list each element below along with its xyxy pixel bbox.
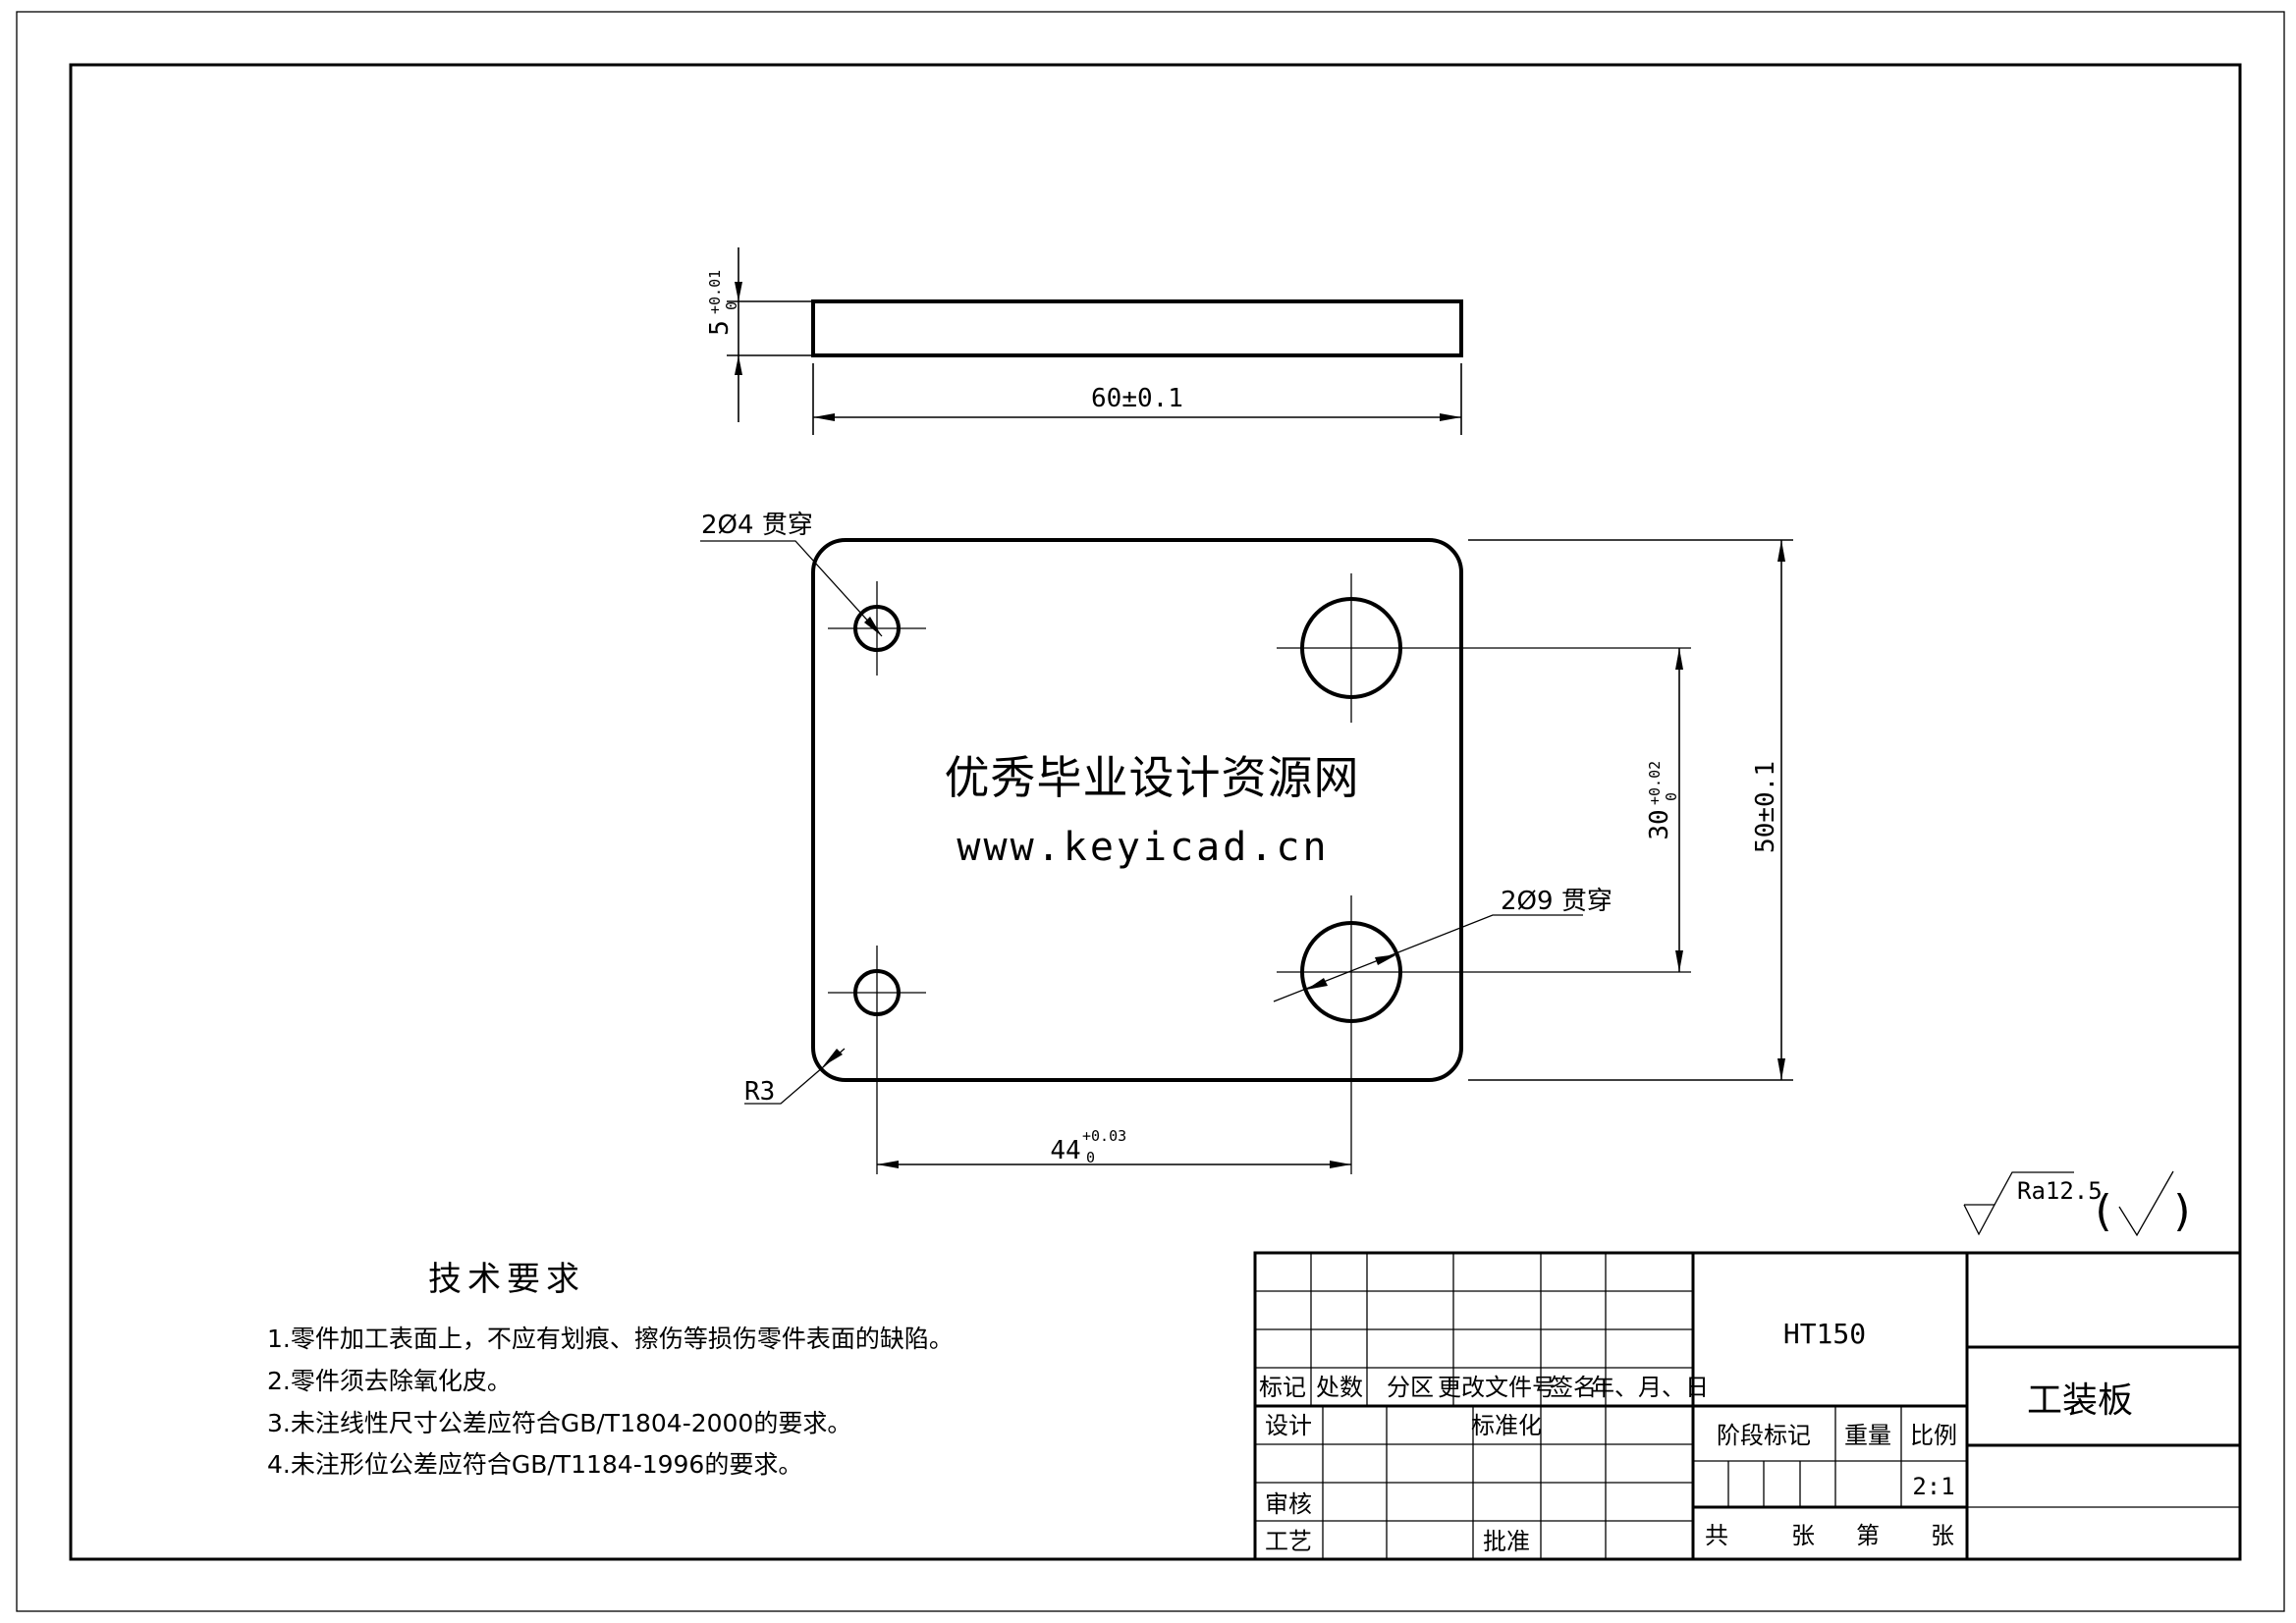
- info-header-weight: 重量: [1844, 1422, 1891, 1449]
- roughness-symbol: Ra12.5: [1964, 1172, 2103, 1234]
- dim-length: 60±0.1: [813, 363, 1461, 435]
- rev-header-count: 处数: [1316, 1374, 1363, 1401]
- watermark: 优秀毕业设计资源网 www.keyicad.cn: [945, 751, 1360, 870]
- dim-hspacing-tol-lower: 0: [1086, 1149, 1095, 1166]
- cad-drawing-canvas: 5 +0.01 0 60±0.1: [0, 0, 2296, 1623]
- rev-header-signature: 签名: [1550, 1374, 1597, 1401]
- leader-big-holes: 2Ø9 贯穿: [1274, 887, 1613, 1001]
- sheet-sheets-label: 张: [1791, 1522, 1815, 1549]
- dim-thickness-value: 5: [705, 320, 735, 336]
- material-value: HT150: [1783, 1318, 1866, 1350]
- rev-header-mark: 标记: [1259, 1374, 1306, 1401]
- tech-requirement-item-3: 3.未注线性尺寸公差应符合GB/T1804-2000的要求。: [267, 1409, 851, 1437]
- sheet-total-label: 共: [1705, 1522, 1728, 1549]
- tech-requirement-item-4: 4.未注形位公差应符合GB/T1184-1996的要求。: [267, 1450, 802, 1479]
- roughness-rest-symbol: ( ): [2095, 1171, 2190, 1236]
- dim-thickness: 5 +0.01 0: [705, 247, 813, 422]
- dim-vspacing-tol-upper: +0.02: [1646, 761, 1664, 805]
- dim-vspacing-tol-lower: 0: [1663, 792, 1680, 801]
- sheet-no-label: 第: [1856, 1522, 1880, 1549]
- dim-height: 50±0.1: [1468, 540, 1793, 1080]
- tech-requirements: 技术要求 1.零件加工表面上，不应有划痕、擦伤等损伤零件表面的缺陷。 2.零件须…: [267, 1260, 954, 1479]
- dim-height-text: 50±0.1: [1751, 761, 1780, 853]
- watermark-line2: www.keyicad.cn: [957, 825, 1329, 870]
- tech-requirement-item-1: 1.零件加工表面上，不应有划痕、擦伤等损伤零件表面的缺陷。: [267, 1325, 954, 1353]
- side-view-outline: [813, 301, 1461, 355]
- drawing-page: 5 +0.01 0 60±0.1: [0, 0, 2296, 1623]
- sign-label-standardize: 标准化: [1471, 1412, 1542, 1439]
- sign-label-approve: 批准: [1483, 1528, 1530, 1555]
- sign-label-design: 设计: [1265, 1412, 1312, 1439]
- leader-small-holes: 2Ø4 贯穿: [700, 511, 882, 636]
- dim-length-text: 60±0.1: [1091, 384, 1183, 413]
- sign-label-check: 审核: [1265, 1490, 1312, 1518]
- dim-hspacing-tol-upper: +0.03: [1082, 1127, 1126, 1145]
- dim-thickness-tol-upper: +0.01: [706, 270, 724, 314]
- label-big-holes: 2Ø9 贯穿: [1501, 887, 1613, 916]
- centerlines: [828, 573, 1691, 1174]
- label-corner-radius: R3: [744, 1077, 775, 1107]
- plate-outline: [813, 540, 1461, 1080]
- part-name: 工装板: [2027, 1380, 2133, 1421]
- label-small-holes: 2Ø4 贯穿: [701, 511, 813, 540]
- sign-label-process: 工艺: [1265, 1528, 1312, 1555]
- roughness-paren-open: (: [2095, 1186, 2111, 1236]
- side-view: 5 +0.01 0 60±0.1: [705, 247, 1461, 435]
- title-block: 标记 处数 分区 更改文件号 签名 年、月、日 设计 标准化 审核 工艺 批准 …: [1255, 1253, 2240, 1559]
- dim-hspacing-value: 44: [1050, 1136, 1080, 1165]
- info-header-scale: 比例: [1910, 1422, 1957, 1449]
- tech-requirement-item-2: 2.零件须去除氧化皮。: [267, 1367, 512, 1395]
- sheet-sheet-label: 张: [1931, 1522, 1954, 1549]
- info-header-stage: 阶段标记: [1717, 1422, 1811, 1449]
- watermark-line1: 优秀毕业设计资源网: [945, 751, 1360, 804]
- tech-requirements-title: 技术要求: [428, 1260, 585, 1299]
- rev-header-docno: 更改文件号: [1438, 1374, 1556, 1401]
- scale-value: 2:1: [1912, 1473, 1954, 1500]
- dim-hole-spacing-vertical: 30 +0.02 0: [1645, 648, 1683, 972]
- roughness-check-icon: [2119, 1171, 2173, 1235]
- dim-hole-spacing-horizontal: 44 +0.03 0: [877, 1127, 1351, 1168]
- rev-header-zone: 分区: [1387, 1374, 1434, 1401]
- roughness-value: Ra12.5: [2017, 1177, 2103, 1205]
- roughness-note: Ra12.5 ( ): [1964, 1171, 2191, 1236]
- roughness-paren-close: ): [2173, 1186, 2190, 1236]
- dim-vspacing-value: 30: [1645, 809, 1674, 839]
- dim-thickness-tol-lower: 0: [723, 301, 740, 310]
- rev-header-date: 年、月、日: [1591, 1374, 1709, 1401]
